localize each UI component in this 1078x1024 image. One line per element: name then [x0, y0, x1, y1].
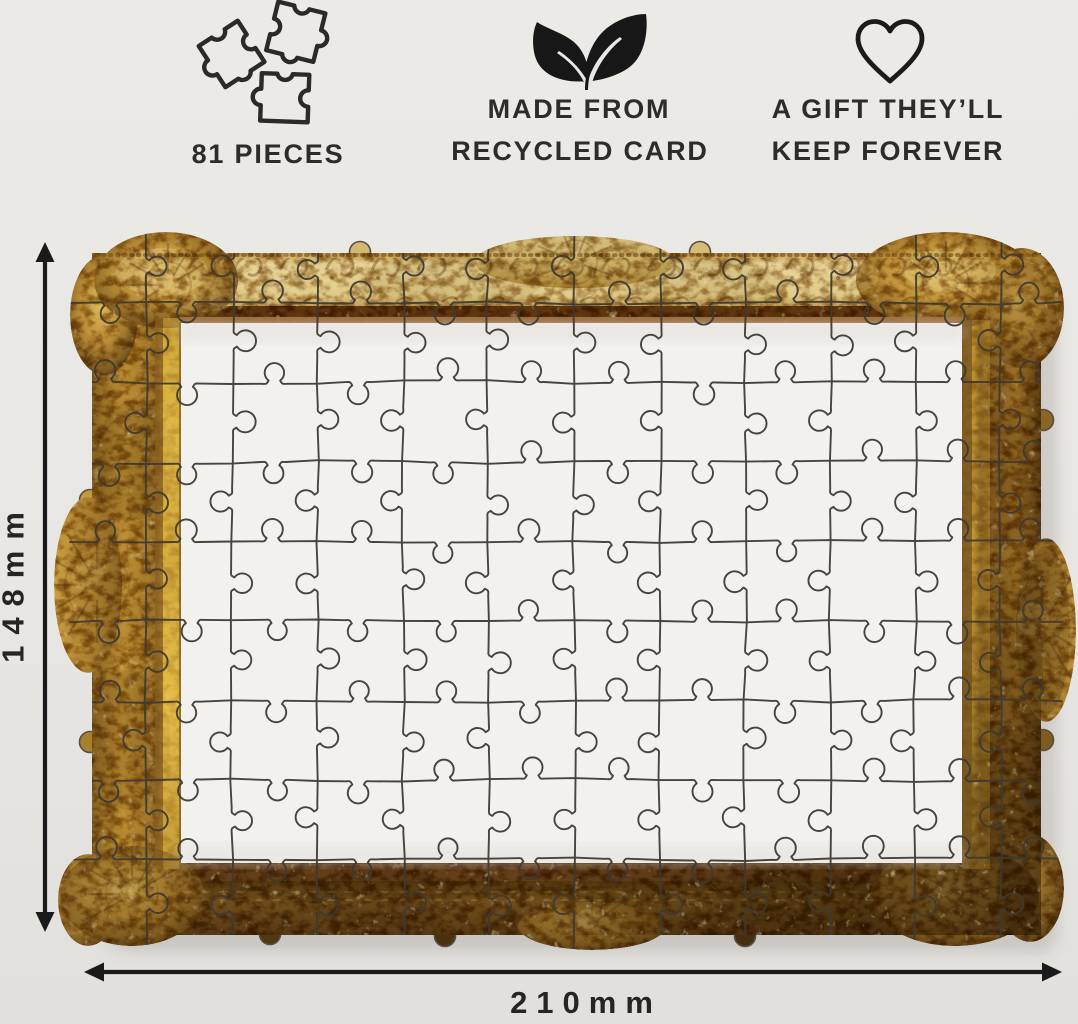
svg-text:KEEP FOREVER: KEEP FOREVER	[772, 136, 1005, 166]
svg-text:148mm: 148mm	[0, 501, 31, 663]
svg-text:MADE FROM: MADE FROM	[488, 94, 671, 124]
svg-text:RECYCLED CARD: RECYCLED CARD	[451, 136, 708, 166]
svg-text:210mm: 210mm	[510, 985, 662, 1020]
svg-text:81 PIECES: 81 PIECES	[192, 139, 345, 169]
svg-text:A GIFT THEY’LL: A GIFT THEY’LL	[772, 94, 1005, 124]
